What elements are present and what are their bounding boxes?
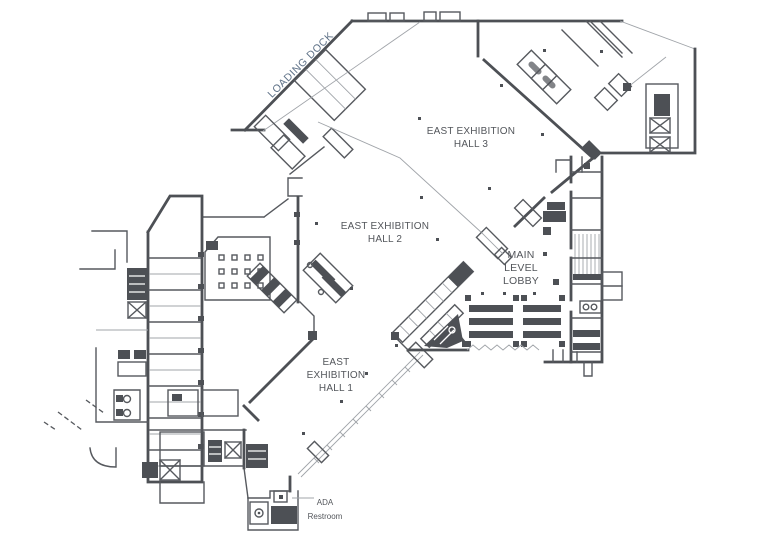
label-east-exhibition-hall-2: EAST EXHIBITION HALL 2 [325, 221, 445, 246]
stair-band [247, 263, 296, 312]
lobby-line2: LEVEL [493, 262, 549, 275]
hall2-line1: EAST EXHIBITION [325, 221, 445, 234]
hall3-line2: HALL 3 [411, 139, 531, 152]
label-east-exhibition-hall-3: EAST EXHIBITION HALL 3 [411, 126, 531, 151]
restroom-pod [303, 253, 352, 302]
ramp-arrow [628, 57, 666, 87]
lobby-line3: LOBBY [493, 275, 549, 288]
west-room-block [127, 196, 204, 503]
hall1-line1: EAST [296, 356, 376, 369]
hall1-line2: EXHIBITION [296, 369, 376, 382]
lobby-line1: MAIN [493, 249, 549, 262]
hall1-line3: HALL 1 [296, 382, 376, 395]
elevator-west [128, 302, 146, 318]
floor-plan: LOADING DOCK EAST EXHIBITION HALL 3 EAST… [0, 0, 768, 548]
label-east-exhibition-hall-1: EAST EXHIBITION HALL 1 [296, 356, 376, 395]
ada-line2: Restroom [302, 510, 348, 524]
restroom-fixtures-west [114, 390, 140, 420]
floor-plan-drawing [0, 0, 768, 548]
hall2-line2: HALL 2 [325, 234, 445, 247]
west-annex [44, 231, 148, 467]
escalator-bank-b [521, 295, 565, 347]
escalator-long [393, 262, 474, 343]
stair-pod [424, 314, 470, 348]
stairwell-west [127, 268, 147, 300]
northeast-wing [517, 21, 678, 152]
stairwell-lobby [571, 234, 602, 280]
escalator-bank-a [465, 295, 519, 347]
ada-line1: ADA [302, 496, 348, 510]
elevator-bank-ne [646, 84, 678, 152]
loading-dock-area [254, 22, 420, 196]
hall2-west-service [202, 197, 353, 313]
curved-wall [90, 448, 116, 467]
label-ada-restroom: ADA Restroom [302, 496, 348, 524]
compactus-line [467, 345, 539, 350]
label-main-level-lobby: MAIN LEVEL LOBBY [493, 249, 549, 288]
hall3-line1: EAST EXHIBITION [411, 126, 531, 139]
restroom-fixtures-lobby [580, 301, 601, 313]
